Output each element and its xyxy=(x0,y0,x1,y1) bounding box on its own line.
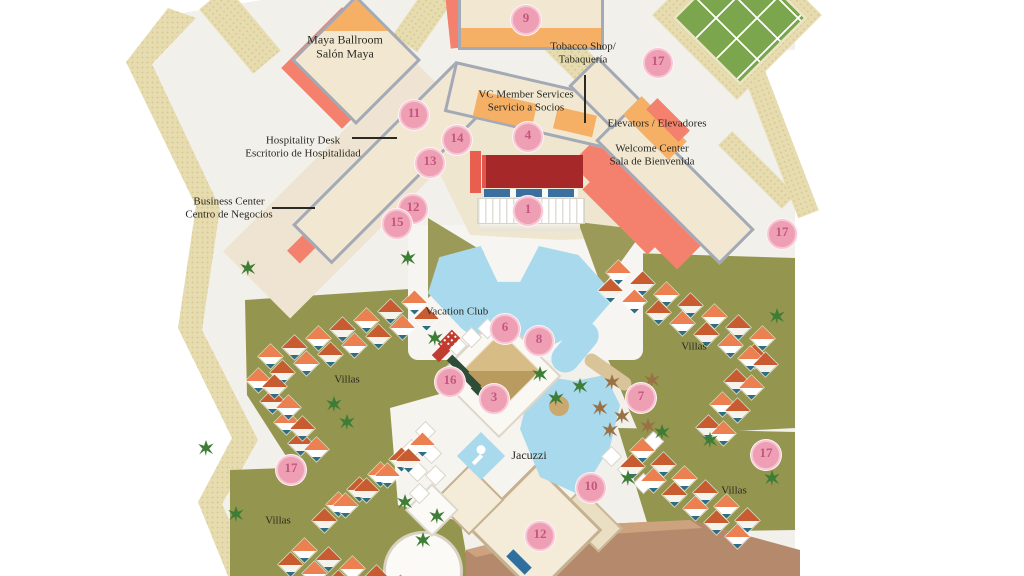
map-marker-3[interactable]: 3 xyxy=(479,384,509,414)
map-marker-7[interactable]: 7 xyxy=(626,383,656,413)
map-marker-17[interactable]: 17 xyxy=(767,219,797,249)
map-marker-14[interactable]: 14 xyxy=(442,125,472,155)
map-marker-4[interactable]: 4 xyxy=(513,122,543,152)
map-marker-11[interactable]: 11 xyxy=(399,100,429,130)
map-marker-12[interactable]: 12 xyxy=(525,521,555,551)
map-marker-17[interactable]: 17 xyxy=(751,440,781,470)
markers-layer: 9171141413112151768163717101217 xyxy=(0,0,1024,576)
map-marker-9[interactable]: 9 xyxy=(511,5,541,35)
map-marker-17[interactable]: 17 xyxy=(643,48,673,78)
map-marker-6[interactable]: 6 xyxy=(490,314,520,344)
resort-map: Maya Ballroom Salón MayaTobacco Shop/ Ta… xyxy=(0,0,1024,576)
map-marker-15[interactable]: 15 xyxy=(382,209,412,239)
map-marker-13[interactable]: 13 xyxy=(415,148,445,178)
map-marker-10[interactable]: 10 xyxy=(576,473,606,503)
map-marker-8[interactable]: 8 xyxy=(524,326,554,356)
map-marker-1[interactable]: 1 xyxy=(513,196,543,226)
map-marker-17[interactable]: 17 xyxy=(276,455,306,485)
map-marker-16[interactable]: 16 xyxy=(435,367,465,397)
